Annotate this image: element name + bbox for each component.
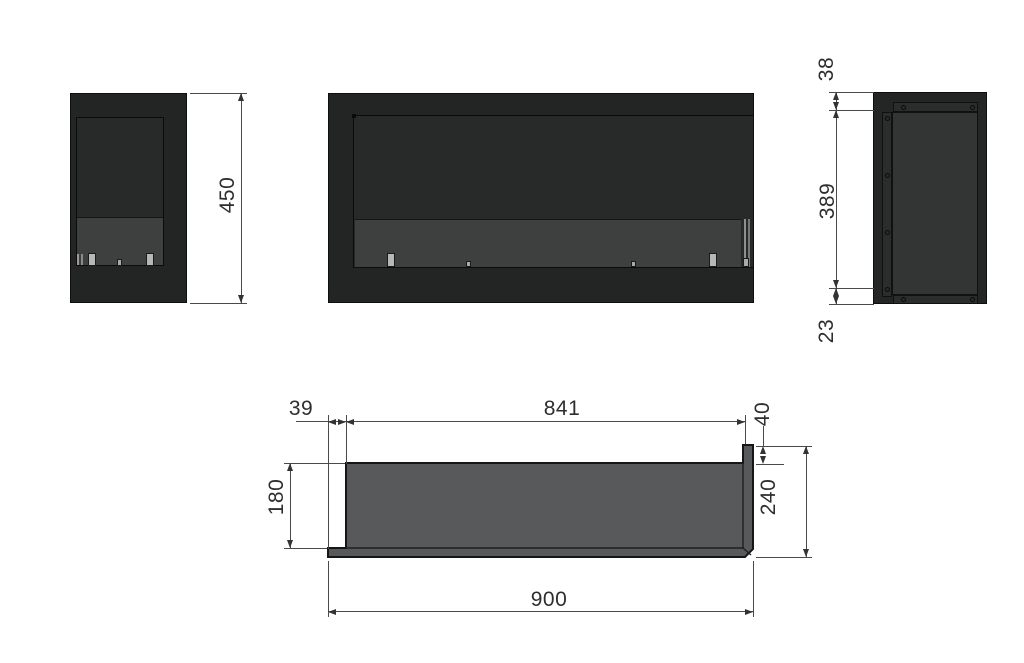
plan-view: 39 841 40 240 180 900 — [0, 0, 1024, 663]
plan-section-shape — [0, 0, 1024, 663]
dim-39-extension-line — [328, 415, 329, 549]
dim-841-extension-line — [745, 415, 746, 444]
dim-900-arrow — [745, 609, 753, 615]
dim-40-label: 40 — [752, 394, 774, 434]
dim-900-extension-line — [753, 561, 754, 617]
dim-40-arrow — [760, 446, 766, 454]
dim-180-label: 180 — [266, 472, 288, 522]
dim-39-arrow — [328, 419, 336, 425]
dim-900-arrow — [328, 609, 336, 615]
dim-180-arrow — [287, 540, 293, 548]
dim-40-arrow — [760, 456, 766, 464]
dim-900-label: 900 — [519, 589, 579, 609]
dim-900-line — [328, 611, 754, 612]
dim-39-arrow — [338, 419, 346, 425]
dim-180-extension-line — [284, 463, 345, 464]
dim-841-arrow — [737, 419, 745, 425]
dim-40-extension-line — [756, 464, 784, 465]
drawing-canvas: 450 — [0, 0, 1024, 663]
dim-240-arrow — [803, 549, 809, 557]
dim-240-arrow — [803, 446, 809, 454]
dim-240-label: 240 — [758, 472, 780, 522]
dim-240-line — [806, 446, 807, 558]
dim-240-extension-line — [756, 557, 812, 558]
dim-180-extension-line — [284, 548, 327, 549]
dim-841-label: 841 — [532, 398, 592, 418]
dim-180-arrow — [287, 463, 293, 471]
dim-180-line — [290, 463, 291, 548]
dim-841-arrow — [346, 419, 354, 425]
dim-841-line — [346, 421, 746, 422]
dim-39-label: 39 — [281, 398, 321, 418]
